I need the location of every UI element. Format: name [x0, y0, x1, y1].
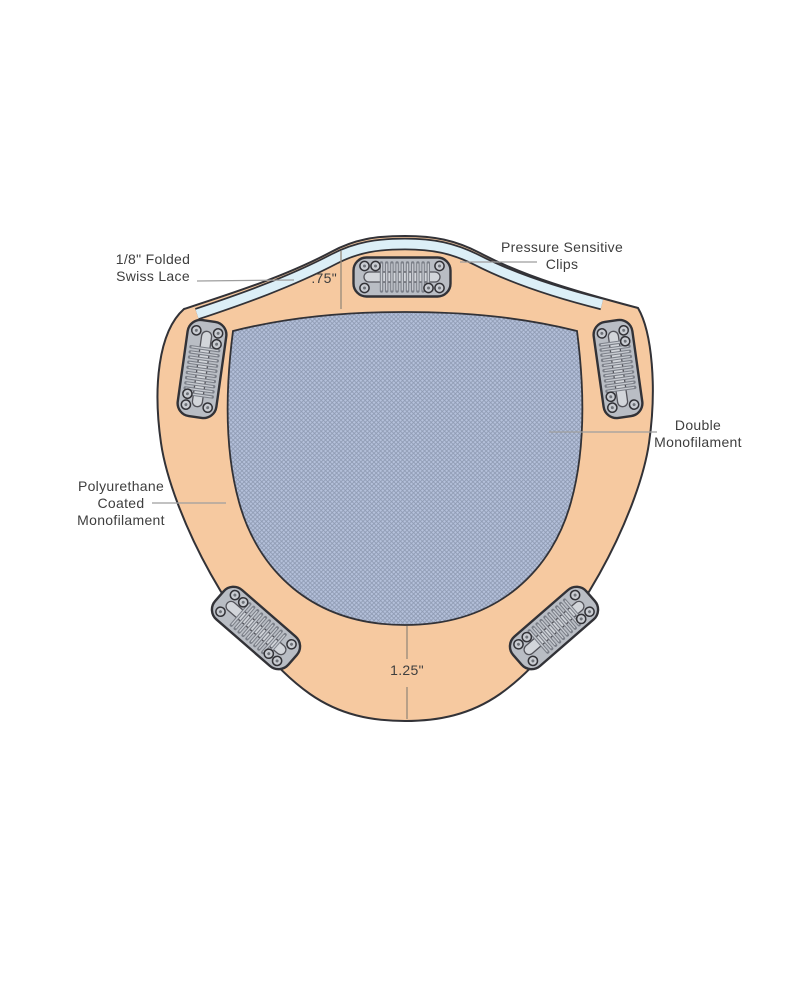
label-polyurethane-coated-monofilament: Polyurethane Coated Monofilament — [50, 478, 192, 529]
label-front-measurement: .75" — [293, 270, 337, 287]
clip-top-icon — [354, 258, 451, 297]
diagram-page: 1/8" Folded Swiss Lace Pressure Sensitiv… — [0, 0, 800, 1000]
label-swiss-lace: 1/8" Folded Swiss Lace — [103, 251, 203, 285]
label-double-monofilament: Double Monofilament — [628, 417, 768, 451]
label-back-measurement: 1.25" — [367, 662, 447, 679]
label-pressure-sensitive-clips: Pressure Sensitive Clips — [488, 239, 636, 273]
double-monofilament-mesh — [228, 312, 583, 625]
